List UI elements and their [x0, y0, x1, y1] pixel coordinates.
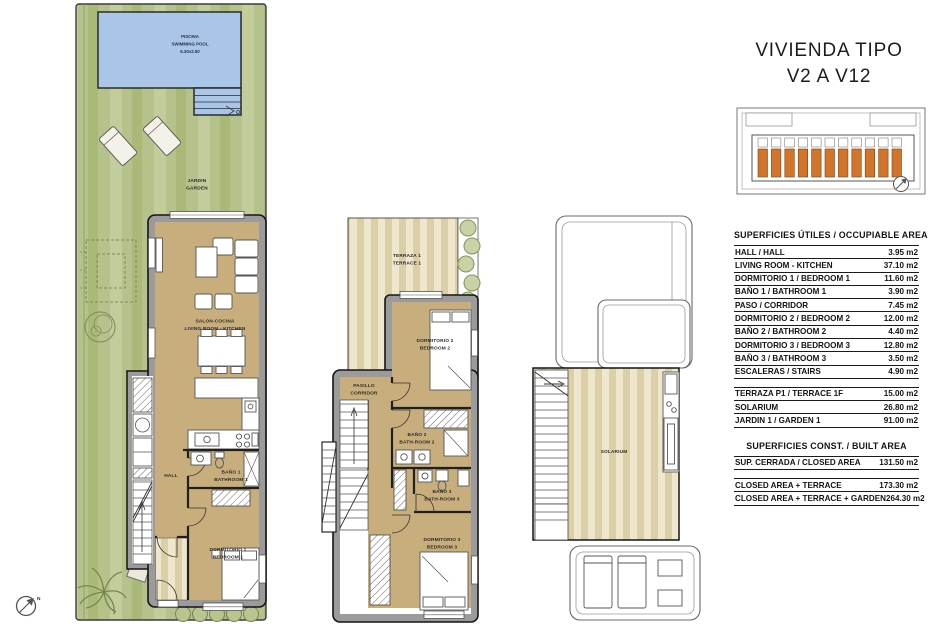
- north-compass-icon: N: [17, 596, 42, 616]
- hall-label: HALL: [164, 473, 177, 479]
- terrace1-name-en: TERRACE 1: [393, 261, 422, 267]
- row-value: 12.00 m2: [884, 314, 918, 323]
- row-label: LIVING ROOM - KITCHEN: [735, 261, 833, 270]
- table-row: JARDIN 1 / GARDEN 191.00 m2: [734, 414, 919, 427]
- table-row: ESCALERAS / STAIRS4.90 m2: [734, 366, 919, 379]
- terrace1-name-es: TERRAZA 1: [393, 253, 421, 259]
- table-row: HALL / HALL3.95 m2: [734, 246, 919, 259]
- area-tables: SUPERFICIES ÚTILES / OCCUPIABLE AREA HAL…: [734, 230, 919, 506]
- row-label: SUP. CERRADA / CLOSED AREA: [735, 458, 861, 467]
- bed2-name-en: BEDROOM 2: [420, 346, 451, 352]
- key-plan-compass-icon: [894, 177, 909, 192]
- table-row: BAÑO 2 / BATHROOM 24.40 m2: [734, 326, 919, 339]
- roof-outline: [556, 216, 692, 368]
- wardrobe1: [212, 490, 250, 506]
- table-row: SUP. CERRADA / CLOSED AREA131.50 m2: [734, 457, 919, 470]
- row-label: HALL / HALL: [735, 248, 785, 257]
- table-row: DORMITORIO 3 / BEDROOM 312.80 m2: [734, 339, 919, 352]
- bath1-name-en: BATHROOM 1: [214, 477, 248, 483]
- table-row: BAÑO 3 / BATHROOM 33.50 m2: [734, 352, 919, 365]
- row-value: 91.00 m2: [884, 416, 918, 425]
- kitchenette: [663, 372, 679, 472]
- north-label: N: [37, 596, 41, 602]
- row-label: ESCALERAS / STAIRS: [735, 367, 821, 376]
- row-label: BAÑO 1 / BATHROOM 1: [735, 287, 826, 296]
- lower-roof: [570, 546, 700, 620]
- row-value: 15.00 m2: [884, 389, 918, 398]
- built-table: SUP. CERRADA / CLOSED AREA131.50 m2: [734, 456, 919, 470]
- row-label: TERRAZA P1 / TERRACE 1F: [735, 389, 843, 398]
- solarium-label: SOLARIUM: [601, 449, 628, 455]
- row-value: 26.80 m2: [884, 403, 918, 412]
- corridor-name-es: PASILLO: [353, 383, 375, 389]
- row-label: DORMITORIO 3 / BEDROOM 3: [735, 341, 850, 350]
- row-value: 4.90 m2: [888, 367, 918, 376]
- row-value: 37.10 m2: [884, 261, 918, 270]
- bed1-name-en: BEDROOM 1: [213, 555, 244, 561]
- key-plan-units: [758, 138, 902, 177]
- first-floor-plan: TERRAZA 1 TERRACE 1: [322, 218, 480, 622]
- row-value: 7.45 m2: [888, 301, 918, 310]
- stairs-ground: [133, 378, 152, 564]
- pool-size: 6.30x2.50: [180, 49, 200, 54]
- ground-floor-plan: PISCINA SWIMMING POOL 6.30x2.50 JARDIN G…: [76, 4, 266, 622]
- row-label: BAÑO 3 / BATHROOM 3: [735, 354, 826, 363]
- pool-name-en: SWIMMING POOL: [171, 42, 208, 47]
- table-row: TERRAZA P1 / TERRACE 1F15.00 m2: [734, 388, 919, 401]
- table-row: DORMITORIO 2 / BEDROOM 212.00 m2: [734, 312, 919, 325]
- row-label: DORMITORIO 1 / BEDROOM 1: [735, 274, 850, 283]
- table-row: SOLARIUM26.80 m2: [734, 401, 919, 414]
- living-name-es: SALON-COCINA: [195, 319, 234, 325]
- table-row: CLOSED AREA + TERRACE + GARDEN264.30 m2: [734, 492, 919, 505]
- table-row: PASO / CORRIDOR7.45 m2: [734, 299, 919, 312]
- wardrobe-bed3: [370, 535, 390, 605]
- row-value: 131.50 m2: [879, 458, 918, 467]
- garden-name-en: GARDEN: [186, 186, 208, 192]
- bath3-name-es: BAÑO 3: [432, 488, 451, 495]
- occupiable-table-title: SUPERFICIES ÚTILES / OCCUPIABLE AREA: [734, 230, 919, 240]
- stairs-solarium: [535, 370, 568, 540]
- row-value: 3.95 m2: [888, 248, 918, 257]
- row-label: PASO / CORRIDOR: [735, 301, 808, 310]
- row-label: CLOSED AREA + TERRACE + GARDEN: [735, 494, 886, 503]
- house-ground: SALON-COCINA LIVING ROOM - KITCHEN HALL …: [127, 212, 266, 611]
- row-label: CLOSED AREA + TERRACE: [735, 481, 842, 490]
- occupiable-table: HALL / HALL3.95 m2 LIVING ROOM - KITCHEN…: [734, 245, 919, 379]
- row-label: SOLARIUM: [735, 403, 778, 412]
- key-plan: [737, 108, 925, 194]
- stairs-first: [322, 400, 368, 532]
- garden-name-es: JARDIN: [188, 178, 207, 184]
- title-line1: VIVIENDA TIPO: [733, 40, 925, 62]
- bath2-name-es: BAÑO 2: [407, 431, 426, 438]
- table-row: CLOSED AREA + TERRACE173.30 m2: [734, 479, 919, 492]
- bed3: [420, 552, 468, 610]
- row-label: DORMITORIO 2 / BEDROOM 2: [735, 314, 850, 323]
- table-row: DORMITORIO 1 / BEDROOM 111.60 m2: [734, 273, 919, 286]
- bed2-name-es: DORMITORIO 2: [417, 338, 454, 344]
- floorplan-sheet: PISCINA SWIMMING POOL 6.30x2.50 JARDIN G…: [0, 0, 945, 625]
- row-value: 264.30 m2: [886, 494, 925, 503]
- row-label: BAÑO 2 / BATHROOM 2: [735, 327, 826, 336]
- living-name-en: LIVING ROOM - KITCHEN: [185, 326, 246, 332]
- corridor-name-en: CORRIDOR: [350, 391, 378, 397]
- row-value: 12.80 m2: [884, 341, 918, 350]
- row-value: 3.90 m2: [888, 287, 918, 296]
- row-value: 11.60 m2: [884, 274, 918, 283]
- page-title: VIVIENDA TIPO V2 A V12: [733, 40, 925, 88]
- table-row: BAÑO 1 / BATHROOM 13.90 m2: [734, 286, 919, 299]
- row-value: 173.30 m2: [879, 481, 918, 490]
- bath2-name-en: BATH-ROOM 2: [399, 440, 434, 446]
- title-line2: V2 A V12: [733, 66, 925, 88]
- house-first: DORMITORIO 2 BEDROOM 2 PASILLO CORRIDOR …: [322, 292, 478, 623]
- built-table-title: SUPERFICIES CONST. / BUILT AREA: [734, 441, 919, 451]
- bed3-name-es: DORMITORIO 3: [424, 537, 461, 543]
- solarium-deck: SOLARIUM: [533, 368, 679, 540]
- row-value: 3.50 m2: [888, 354, 918, 363]
- bed1-name-es: DORMITORIO 1: [210, 547, 247, 553]
- solarium-plan: SOLARIUM: [533, 216, 700, 620]
- row-label: JARDIN 1 / GARDEN 1: [735, 416, 820, 425]
- pool-name-es: PISCINA: [181, 34, 200, 39]
- row-value: 4.40 m2: [888, 327, 918, 336]
- bath1-name-es: BAÑO 1: [221, 469, 240, 476]
- totals-table: CLOSED AREA + TERRACE173.30 m2 CLOSED AR…: [734, 478, 919, 506]
- bed3-name-en: BEDROOM 3: [427, 545, 458, 551]
- table-row: LIVING ROOM - KITCHEN37.10 m2: [734, 259, 919, 272]
- exterior-areas-table: TERRAZA P1 / TERRACE 1F15.00 m2 SOLARIUM…: [734, 387, 919, 428]
- bath3-name-en: BATH-ROOM 3: [424, 497, 459, 503]
